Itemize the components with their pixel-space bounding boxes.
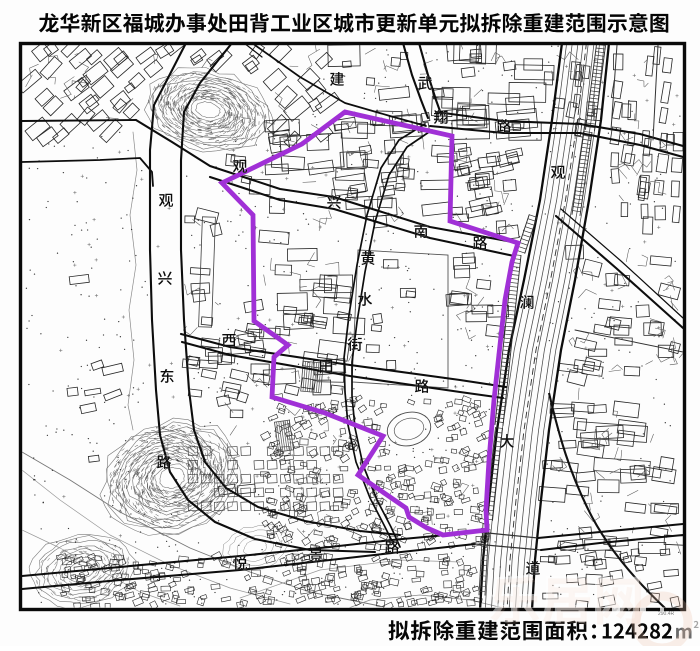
svg-text:290.4R: 290.4R xyxy=(658,611,675,617)
